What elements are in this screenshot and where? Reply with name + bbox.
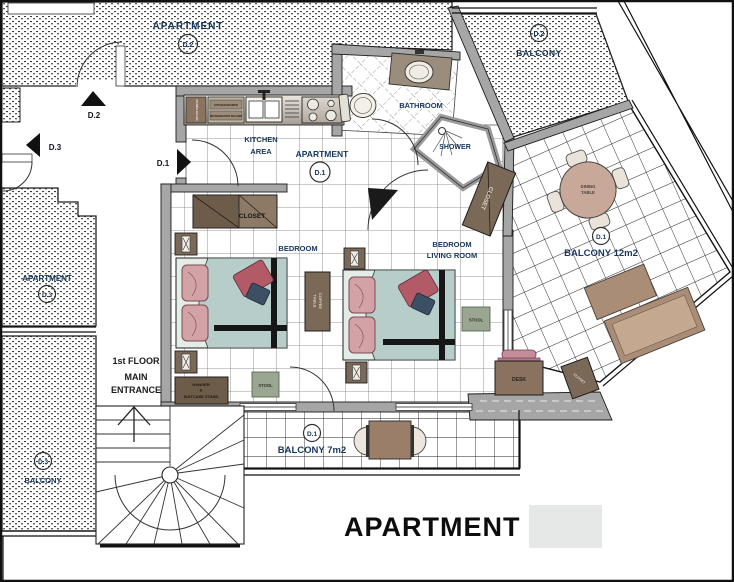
faucet-icon	[258, 90, 270, 93]
nightstand-icon	[175, 233, 197, 255]
burner-3	[328, 100, 334, 106]
bed-bedroom	[176, 258, 287, 348]
bed-pillow-2	[182, 305, 208, 341]
hanger-label-3: SUITCASE STAND	[184, 394, 219, 399]
bed-living-room	[343, 269, 455, 360]
kitchen-label-2: AREA	[250, 147, 272, 156]
stool-bedroom-label: STOOL	[258, 383, 273, 388]
cabinet-label-2: REFRIGERATOR WASHER	[210, 114, 243, 118]
bedroom-living-label-1: BEDROOM	[432, 240, 471, 249]
closet-bedroom-label: CLOSET	[239, 213, 265, 220]
page-title: APARTMENT 1	[344, 512, 545, 542]
burner-2	[309, 113, 317, 121]
bed-side-bar	[214, 325, 287, 331]
stove	[302, 97, 342, 123]
dining-table-label-1: DINING	[581, 184, 596, 189]
hanger-label-2: &	[200, 388, 203, 393]
entrance-label-1: 1st FLOOR	[112, 356, 160, 366]
wall-desk-chunk	[468, 392, 612, 420]
hanger-label-1: HANGER	[192, 382, 209, 387]
balcony-12-label: BALCONY 12m2	[564, 248, 638, 259]
title-swatch	[529, 505, 602, 548]
bed-pillow-1	[182, 265, 208, 301]
floor-plan-page: IRONING BOARD KITCHEN DRAWER REFRIGERATO…	[0, 0, 734, 582]
bedroom-living-label-2: LIVING ROOM	[427, 251, 477, 260]
cabinet-ironing-label: IRONING BOARD	[195, 99, 199, 120]
door-leaf-d2	[116, 46, 125, 86]
bed2-foot-bar	[439, 270, 445, 360]
apartment-d2-id: D.2	[183, 42, 194, 49]
nightstand-icon	[175, 351, 197, 373]
wall-bedroom-left	[161, 184, 171, 412]
balcony-12-id: D.1	[596, 234, 607, 241]
kitchen-counter: IRONING BOARD KITCHEN DRAWER REFRIGERATO…	[184, 90, 344, 125]
balcony7-table	[369, 421, 411, 459]
floor-plan: IRONING BOARD KITCHEN DRAWER REFRIGERATO…	[0, 0, 734, 582]
bathroom-label: BATHROOM	[399, 101, 443, 110]
apartment-d3-label: APARTMENT	[22, 274, 72, 283]
stool-living-label: STOOL	[469, 318, 484, 323]
stair-pole	[162, 467, 178, 483]
burner-4	[326, 110, 336, 120]
dining-table-label-2: TABLE	[581, 190, 595, 195]
door-label-d3: D.3	[49, 143, 62, 152]
apartment-d2-label: APARTMENT	[152, 21, 223, 32]
entrance-label-3: ENTRANCE	[111, 385, 161, 395]
balcony-7-label: BALCONY 7m2	[278, 445, 346, 456]
sink-basin-right	[265, 101, 279, 118]
apartment-d1-label: APARTMENT	[296, 149, 350, 159]
door-leaf-d3	[2, 154, 32, 162]
bed2-pillow-1	[349, 277, 375, 313]
staircase	[96, 406, 244, 546]
cabinet-label-1: KITCHEN DRAWER	[214, 103, 238, 107]
nightstand-icon	[344, 248, 365, 269]
entrance-label-2: MAIN	[125, 372, 148, 382]
sink-basin-left	[249, 101, 263, 118]
nightstand-icon	[346, 362, 367, 383]
bed2-side-bar	[383, 339, 455, 345]
door-label-d1: D.1	[157, 159, 170, 168]
kitchen-label-1: KITCHEN	[244, 135, 277, 144]
coffee-table-label-2: TABLE	[313, 294, 318, 307]
balcony-d2-label: BALCONY	[516, 48, 562, 58]
desk-label: DESK	[512, 377, 526, 383]
burner-1	[308, 99, 319, 110]
coffee-table-label-1: COFFEE	[318, 293, 323, 310]
apartment-d1-id: D.1	[315, 170, 326, 177]
apartment-d3-id: D.3	[42, 292, 53, 299]
neighbor-wall-block	[2, 88, 20, 122]
balcony-d3-label: BALCONY	[24, 476, 61, 485]
shower-label: SHOWER	[439, 144, 471, 151]
top-wall-notch	[8, 3, 94, 14]
wall-hall-divider	[161, 184, 287, 192]
shower-head-icon	[439, 128, 446, 135]
bathroom-faucet-icon	[415, 50, 424, 54]
bedroom-label: BEDROOM	[278, 244, 317, 253]
door-label-d2: D.2	[88, 111, 101, 120]
balcony-d2-id: D.2	[534, 31, 545, 38]
closet-bedroom	[193, 195, 277, 228]
desk-chair-back	[502, 350, 536, 359]
balcony-d3-id: D.3	[38, 459, 49, 466]
bed-foot-bar	[271, 258, 277, 348]
bed2-pillow-2	[349, 317, 375, 353]
balcony-d3-area	[2, 336, 96, 531]
balcony-7-id: D.1	[307, 431, 318, 438]
faucet-stem	[263, 93, 266, 100]
